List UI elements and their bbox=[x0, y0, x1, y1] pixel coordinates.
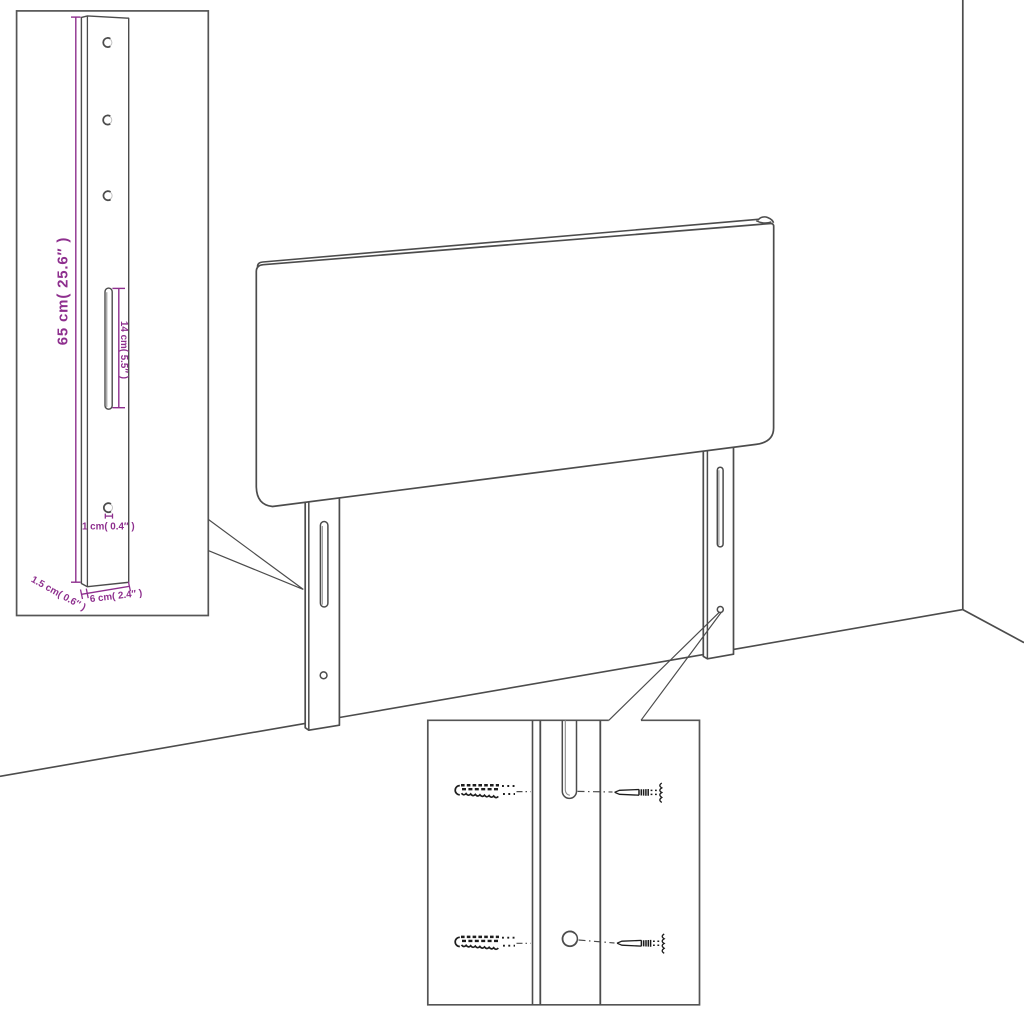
svg-text:65 cm( 25.6″ ): 65 cm( 25.6″ ) bbox=[54, 237, 71, 345]
svg-text:6 cm( 2.4″ ): 6 cm( 2.4″ ) bbox=[89, 588, 143, 605]
svg-text:1.5 cm( 0.6″ ): 1.5 cm( 0.6″ ) bbox=[29, 574, 87, 613]
svg-text:1 cm( 0.4″ ): 1 cm( 0.4″ ) bbox=[82, 522, 135, 533]
svg-text:14 cm( 5.5″ ): 14 cm( 5.5″ ) bbox=[118, 321, 129, 379]
